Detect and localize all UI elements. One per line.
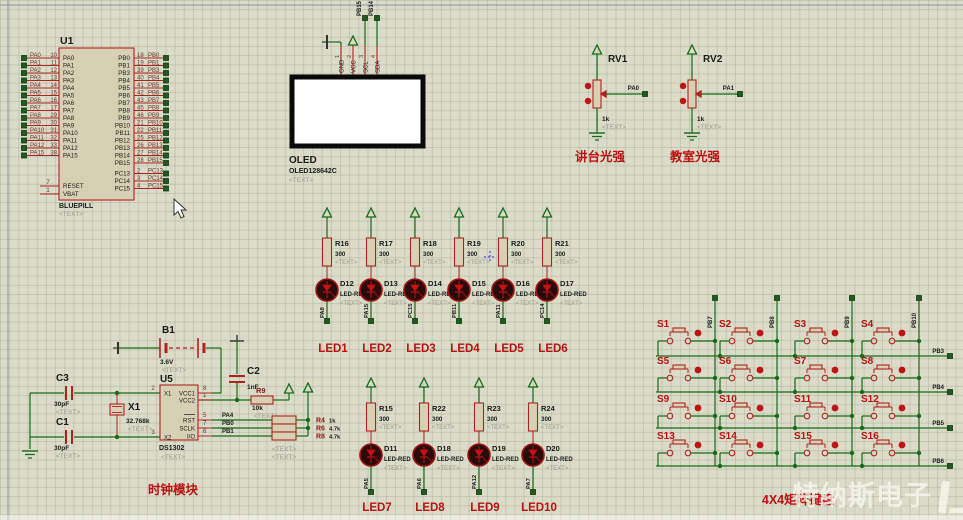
key-contact[interactable] bbox=[729, 450, 735, 456]
bottom-edge-highlight bbox=[0, 515, 963, 520]
junction-dot bbox=[713, 339, 717, 343]
power-arrow-icon bbox=[285, 384, 294, 393]
terminal bbox=[164, 171, 169, 176]
key-contact[interactable] bbox=[747, 375, 753, 381]
pin-name: PA3 bbox=[63, 78, 75, 85]
key-toggle-dot[interactable] bbox=[695, 442, 702, 449]
pin-number: 7 bbox=[46, 180, 50, 186]
net-label: PA1 bbox=[723, 86, 735, 92]
power-arrow-icon bbox=[543, 208, 552, 217]
pin-number: 46 bbox=[137, 113, 144, 119]
pin-number: 14 bbox=[50, 83, 57, 89]
resistor-body[interactable] bbox=[323, 238, 332, 266]
key-contact[interactable] bbox=[729, 413, 735, 419]
text-placeholder: <TEXT> bbox=[384, 301, 407, 307]
pin-name: PC14 bbox=[115, 178, 131, 185]
pin-number: 3 bbox=[359, 55, 365, 58]
key-toggle-dot[interactable] bbox=[899, 442, 906, 449]
key-cap[interactable] bbox=[673, 403, 685, 407]
pot-ref: RV2 bbox=[703, 54, 723, 65]
key-cap[interactable] bbox=[735, 440, 747, 444]
junction-dot bbox=[775, 339, 779, 343]
led-part: LED-RED bbox=[560, 292, 587, 298]
key-toggle-dot[interactable] bbox=[899, 405, 906, 412]
terminal bbox=[413, 319, 418, 324]
key-contact[interactable] bbox=[889, 375, 895, 381]
terminal bbox=[325, 319, 330, 324]
key-cap[interactable] bbox=[735, 365, 747, 369]
net-label: PB10 bbox=[912, 312, 918, 328]
terminal bbox=[164, 108, 169, 113]
crystal-value: 32.768k bbox=[126, 418, 150, 425]
terminal bbox=[948, 354, 953, 359]
net-label: PA15 bbox=[364, 303, 370, 318]
terminal bbox=[164, 93, 169, 98]
net-label: PA9 bbox=[30, 120, 42, 126]
resistor-body[interactable] bbox=[272, 432, 296, 440]
led-caption: LED5 bbox=[494, 343, 524, 355]
net-label: PB14 bbox=[148, 150, 163, 156]
terminal bbox=[850, 296, 855, 301]
junction-dot bbox=[718, 464, 722, 468]
pot-increase-button[interactable] bbox=[680, 83, 686, 89]
key-contact[interactable] bbox=[729, 375, 735, 381]
terminal bbox=[164, 161, 169, 166]
junction-dot bbox=[793, 464, 797, 468]
key-contact[interactable] bbox=[871, 338, 877, 344]
pin-number: 5 bbox=[203, 413, 207, 419]
junction-dot bbox=[860, 426, 864, 430]
resistor-body[interactable] bbox=[272, 424, 296, 432]
pin-name: PB5 bbox=[118, 85, 130, 92]
key-contact[interactable] bbox=[685, 450, 691, 456]
pin-number: 1 bbox=[203, 393, 207, 399]
net-label: PA12 bbox=[472, 475, 478, 489]
key-contact[interactable] bbox=[667, 450, 673, 456]
net-label: PB0 bbox=[222, 421, 234, 427]
key-toggle-dot[interactable] bbox=[899, 367, 906, 374]
key-cap[interactable] bbox=[877, 328, 889, 332]
key-cap[interactable] bbox=[810, 365, 822, 369]
terminal bbox=[22, 116, 27, 121]
resistor-ref: R23 bbox=[487, 404, 501, 413]
resistor-value: 300 bbox=[467, 251, 478, 258]
resistor-ref: R4 bbox=[316, 418, 325, 425]
key-label: S8 bbox=[861, 356, 874, 367]
key-contact[interactable] bbox=[667, 375, 673, 381]
text-placeholder: <TEXT> bbox=[555, 260, 578, 266]
text-placeholder: <TEXT> bbox=[379, 260, 402, 266]
terminal bbox=[531, 490, 536, 495]
terminal bbox=[164, 131, 169, 136]
pin-name: PB3 bbox=[118, 70, 130, 77]
text-placeholder: <TEXT> bbox=[492, 466, 515, 472]
key-contact[interactable] bbox=[871, 413, 877, 419]
text-placeholder: <TEXT> bbox=[423, 260, 446, 266]
pin-name: PA7 bbox=[63, 108, 75, 115]
key-contact[interactable] bbox=[667, 338, 673, 344]
key-contact[interactable] bbox=[729, 338, 735, 344]
terminal bbox=[713, 296, 718, 301]
terminal bbox=[164, 56, 169, 61]
key-label: S7 bbox=[794, 356, 807, 367]
net-label: PB6 bbox=[932, 459, 944, 465]
pin-name: I/O bbox=[187, 435, 195, 441]
key-cap[interactable] bbox=[735, 328, 747, 332]
key-contact[interactable] bbox=[804, 375, 810, 381]
pot-decrease-button[interactable] bbox=[585, 98, 591, 104]
key-contact[interactable] bbox=[804, 338, 810, 344]
resistor-r9-body[interactable] bbox=[251, 396, 273, 404]
resistor-ref: R24 bbox=[541, 404, 556, 413]
crystal-body[interactable] bbox=[110, 404, 124, 415]
text-placeholder: <TEXT> bbox=[437, 466, 460, 472]
junction-dot bbox=[917, 339, 921, 343]
u5-part: DS1302 bbox=[159, 445, 184, 452]
text-placeholder: <TEXT> bbox=[428, 301, 451, 307]
key-contact[interactable] bbox=[804, 450, 810, 456]
net-label: PB9 bbox=[845, 316, 851, 328]
pin-number: 2 bbox=[151, 386, 155, 392]
oled-display[interactable] bbox=[292, 77, 423, 146]
text-placeholder: <TEXT> bbox=[335, 260, 358, 266]
led-part: LED-RED bbox=[546, 457, 573, 463]
text-placeholder: <TEXT> bbox=[56, 453, 80, 460]
key-cap[interactable] bbox=[810, 403, 822, 407]
text-placeholder: <TEXT> bbox=[511, 260, 534, 266]
led-part: LED-RED bbox=[384, 457, 411, 463]
resistor-body[interactable] bbox=[367, 238, 376, 266]
pot-value: 1k bbox=[602, 116, 610, 123]
terminal bbox=[22, 56, 27, 61]
text-placeholder: <TEXT> bbox=[602, 124, 626, 131]
net-label: PB8 bbox=[770, 316, 776, 328]
resistor-ref: R8 bbox=[316, 434, 325, 441]
key-toggle-dot[interactable] bbox=[695, 330, 702, 337]
net-label: PA5 bbox=[364, 477, 370, 489]
resistor-value: 300 bbox=[379, 251, 390, 258]
resistor-body[interactable] bbox=[272, 416, 296, 424]
power-arrow-icon bbox=[420, 378, 429, 387]
terminal bbox=[164, 123, 169, 128]
terminal bbox=[22, 131, 27, 136]
key-toggle-dot[interactable] bbox=[899, 330, 906, 337]
pin-name: RST bbox=[183, 419, 195, 425]
net-label: PA7 bbox=[526, 478, 532, 489]
net-label: PA8 bbox=[320, 306, 326, 318]
pin-number: 1 bbox=[46, 188, 50, 194]
key-contact[interactable] bbox=[685, 413, 691, 419]
net-label: PB4 bbox=[148, 75, 160, 81]
key-toggle-dot[interactable] bbox=[695, 405, 702, 412]
net-label: PB5 bbox=[148, 83, 160, 89]
text-placeholder: <TEXT> bbox=[546, 466, 569, 472]
power-arrow-icon bbox=[367, 208, 376, 217]
resistor-body[interactable] bbox=[543, 238, 552, 266]
pin-number: 1 bbox=[335, 55, 341, 58]
key-contact[interactable] bbox=[889, 450, 895, 456]
key-contact[interactable] bbox=[822, 375, 828, 381]
resistor-value: 1k bbox=[329, 419, 336, 425]
key-contact[interactable] bbox=[804, 413, 810, 419]
terminal bbox=[22, 146, 27, 151]
pin-name: PB4 bbox=[118, 78, 130, 85]
pin-number: 31 bbox=[50, 128, 57, 134]
led-ref: D18 bbox=[437, 444, 451, 453]
key-toggle-dot[interactable] bbox=[757, 442, 764, 449]
resistor-ref: R20 bbox=[511, 239, 525, 248]
terminal bbox=[501, 319, 506, 324]
u5-ref: U5 bbox=[160, 374, 173, 385]
pin-name: PA15 bbox=[63, 153, 78, 160]
power-arrow-icon bbox=[529, 378, 538, 387]
key-toggle-dot[interactable] bbox=[757, 367, 764, 374]
pin-number: 10 bbox=[50, 53, 57, 59]
pin-number: 12 bbox=[50, 68, 57, 74]
pin-number: 8 bbox=[203, 386, 207, 392]
key-contact[interactable] bbox=[685, 375, 691, 381]
key-cap[interactable] bbox=[877, 365, 889, 369]
key-toggle-dot[interactable] bbox=[832, 405, 839, 412]
led-caption: LED2 bbox=[362, 343, 391, 355]
net-label: PB5 bbox=[932, 421, 944, 427]
resistor-body[interactable] bbox=[475, 403, 484, 431]
key-contact[interactable] bbox=[685, 338, 691, 344]
text-placeholder: <TEXT> bbox=[379, 425, 402, 431]
pin-name: PA5 bbox=[63, 93, 75, 100]
pin-number: 28 bbox=[137, 158, 144, 164]
resistor-value: 4.7k bbox=[329, 427, 341, 433]
pin-number: 25 bbox=[137, 135, 144, 141]
led-ref: D17 bbox=[560, 279, 574, 288]
terminal bbox=[164, 146, 169, 151]
resistor-ref: R16 bbox=[335, 239, 349, 248]
key-toggle-dot[interactable] bbox=[695, 367, 702, 374]
key-contact[interactable] bbox=[822, 450, 828, 456]
text-placeholder: <TEXT> bbox=[541, 425, 564, 431]
pin-name: PA6 bbox=[63, 100, 75, 107]
text-placeholder: <TEXT> bbox=[162, 367, 186, 374]
pin-name: PC13 bbox=[115, 171, 131, 178]
text-placeholder: <TEXT> bbox=[272, 446, 296, 453]
terminal bbox=[22, 86, 27, 91]
resistor-body[interactable] bbox=[499, 238, 508, 266]
terminal bbox=[22, 108, 27, 113]
net-label: PA12 bbox=[30, 143, 45, 149]
net-label: PA0 bbox=[628, 86, 640, 92]
junction-dot bbox=[850, 451, 854, 455]
net-label: PB7 bbox=[148, 98, 160, 104]
oled-part: OLED128642C bbox=[289, 168, 337, 175]
text-placeholder: <TEXT> bbox=[432, 425, 455, 431]
pin-name: PA11 bbox=[63, 138, 78, 145]
net-label: PA7 bbox=[30, 105, 42, 111]
net-label: PC13 bbox=[148, 168, 164, 174]
battery-value: 3.6V bbox=[160, 359, 174, 366]
resistor-ref: R22 bbox=[432, 404, 446, 413]
pin-name: PB14 bbox=[115, 153, 131, 160]
key-contact[interactable] bbox=[747, 450, 753, 456]
led-ref: D11 bbox=[384, 444, 397, 453]
net-label: PA0 bbox=[30, 53, 42, 59]
power-arrow-icon bbox=[349, 36, 358, 45]
pin-name: PB10 bbox=[115, 123, 131, 130]
text-placeholder: <TEXT> bbox=[56, 409, 80, 416]
key-contact[interactable] bbox=[889, 413, 895, 419]
net-label: PA8 bbox=[30, 113, 42, 119]
key-cap[interactable] bbox=[877, 440, 889, 444]
resistor-body[interactable] bbox=[529, 403, 538, 431]
pin-name: PA1 bbox=[63, 63, 75, 70]
key-contact[interactable] bbox=[747, 413, 753, 419]
led-ref: D19 bbox=[492, 444, 506, 453]
resistor-ref: R9 bbox=[256, 386, 266, 395]
terminal bbox=[948, 390, 953, 395]
pin-name: PA0 bbox=[63, 55, 75, 62]
power-arrow-icon bbox=[593, 45, 602, 54]
resistor-body[interactable] bbox=[367, 403, 376, 431]
terminal bbox=[164, 101, 169, 106]
terminal bbox=[738, 92, 743, 97]
pin-number: 26 bbox=[137, 143, 144, 149]
text-placeholder: <TEXT> bbox=[467, 260, 490, 266]
pin-name: PB15 bbox=[115, 160, 131, 167]
pin-name: SCL bbox=[364, 61, 370, 73]
net-label: PA1 bbox=[30, 60, 42, 66]
led-ref: D12 bbox=[340, 279, 354, 288]
terminal bbox=[164, 86, 169, 91]
pin-name: PB9 bbox=[118, 115, 130, 122]
terminal bbox=[22, 63, 27, 68]
key-cap[interactable] bbox=[810, 328, 822, 332]
led-part: LED-RED bbox=[492, 457, 519, 463]
key-contact[interactable] bbox=[871, 375, 877, 381]
resistor-body[interactable] bbox=[455, 238, 464, 266]
schematic-svg: U1PA010PA0PA111PA1PA212PA2PA313PA3PA414P… bbox=[0, 0, 963, 520]
terminal bbox=[477, 490, 482, 495]
key-toggle-dot[interactable] bbox=[757, 405, 764, 412]
pin-number: 21 bbox=[137, 120, 144, 126]
pin-number: 7 bbox=[203, 421, 207, 427]
power-arrow-icon bbox=[688, 45, 697, 54]
net-label: PB13 bbox=[148, 143, 163, 149]
pin-name: X1 bbox=[164, 392, 172, 398]
terminal bbox=[22, 78, 27, 83]
net-label: PB9 bbox=[148, 113, 160, 119]
pin-name: SCLK bbox=[179, 427, 195, 433]
terminal bbox=[948, 426, 953, 431]
key-cap[interactable] bbox=[735, 403, 747, 407]
battery-ref: B1 bbox=[162, 325, 175, 336]
terminal bbox=[164, 186, 169, 191]
key-cap[interactable] bbox=[877, 403, 889, 407]
pin-number: 33 bbox=[50, 143, 57, 149]
proteus-schematic-canvas[interactable]: U1PA010PA0PA111PA1PA212PA2PA313PA3PA414P… bbox=[0, 0, 963, 520]
pot-decrease-button[interactable] bbox=[680, 98, 686, 104]
junction-dot bbox=[850, 339, 854, 343]
terminal bbox=[164, 138, 169, 143]
pin-number: 39 bbox=[137, 68, 144, 74]
net-label: PB14 bbox=[369, 0, 375, 16]
pin-name: VBAT bbox=[63, 191, 79, 198]
key-cap[interactable] bbox=[810, 440, 822, 444]
junction-dot bbox=[775, 451, 779, 455]
cap-value: 30pF bbox=[54, 445, 69, 452]
resistor-ref: R6 bbox=[316, 426, 325, 433]
key-contact[interactable] bbox=[747, 338, 753, 344]
cap-ref: C3 bbox=[56, 373, 69, 384]
key-cap[interactable] bbox=[673, 328, 685, 332]
pot-increase-button[interactable] bbox=[585, 83, 591, 89]
resistor-value: 300 bbox=[511, 251, 522, 258]
text-placeholder: <TEXT> bbox=[560, 301, 583, 307]
key-contact[interactable] bbox=[822, 413, 828, 419]
terminal bbox=[422, 490, 427, 495]
pin-name: PB11 bbox=[115, 130, 130, 137]
net-label: PB11 bbox=[452, 303, 458, 318]
pin-name: PB1 bbox=[118, 63, 130, 70]
key-cap[interactable] bbox=[673, 440, 685, 444]
resistor-body[interactable] bbox=[420, 403, 429, 431]
cap-value: 30pF bbox=[54, 401, 69, 408]
pin-number: 45 bbox=[137, 105, 144, 111]
module-caption: 时钟模块 bbox=[148, 482, 199, 497]
key-toggle-dot[interactable] bbox=[832, 442, 839, 449]
pin-name: RESET bbox=[63, 183, 84, 190]
power-arrow-icon bbox=[411, 208, 420, 217]
pin-number: 16 bbox=[50, 98, 57, 104]
net-label: PB1 bbox=[148, 60, 160, 66]
pot-caption: 讲台光强 bbox=[575, 149, 626, 164]
net-label: PB10 bbox=[148, 120, 163, 126]
key-cap[interactable] bbox=[673, 365, 685, 369]
terminal bbox=[948, 464, 953, 469]
resistor-ref: R21 bbox=[555, 239, 569, 248]
pin-number: 32 bbox=[50, 135, 57, 141]
key-toggle-dot[interactable] bbox=[832, 367, 839, 374]
key-contact[interactable] bbox=[889, 338, 895, 344]
u1-part: BLUEPILL bbox=[59, 203, 94, 210]
pin-name: PB12 bbox=[115, 138, 131, 145]
key-contact[interactable] bbox=[667, 413, 673, 419]
key-contact[interactable] bbox=[871, 450, 877, 456]
terminal bbox=[22, 93, 27, 98]
net-label: PB3 bbox=[148, 68, 160, 74]
junction-dot bbox=[917, 414, 921, 418]
net-label: PA4 bbox=[222, 413, 234, 419]
key-toggle-dot[interactable] bbox=[832, 330, 839, 337]
key-label: S3 bbox=[794, 319, 807, 330]
resistor-value: 300 bbox=[555, 251, 566, 258]
key-contact[interactable] bbox=[822, 338, 828, 344]
pin-number: 6 bbox=[203, 429, 207, 435]
resistor-value: 300 bbox=[335, 251, 346, 258]
key-label: S5 bbox=[657, 356, 670, 367]
text-placeholder: <TEXT> bbox=[161, 454, 185, 461]
junction-dot bbox=[860, 464, 864, 468]
pin-number: 15 bbox=[50, 90, 57, 96]
terminal bbox=[375, 16, 380, 21]
terminal bbox=[164, 71, 169, 76]
text-placeholder: <TEXT> bbox=[516, 301, 539, 307]
net-label: PB3 bbox=[932, 349, 944, 355]
key-label: S4 bbox=[861, 319, 874, 330]
resistor-body[interactable] bbox=[411, 238, 420, 266]
net-label: PB4 bbox=[932, 385, 944, 391]
key-toggle-dot[interactable] bbox=[757, 330, 764, 337]
cap-ref: C1 bbox=[56, 417, 69, 428]
text-placeholder: <TEXT> bbox=[340, 301, 363, 307]
